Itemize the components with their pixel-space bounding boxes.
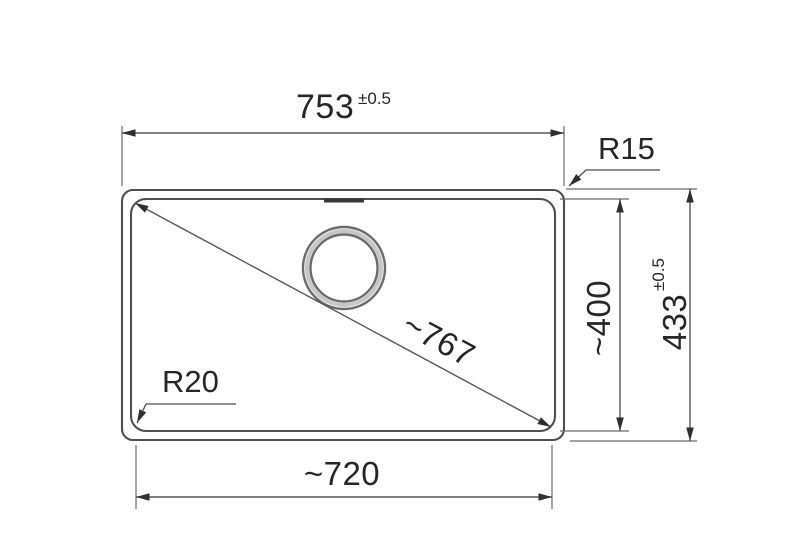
dim-label-height-outer: 433 <box>656 294 693 351</box>
dimension-bottom-width: ~720 <box>136 445 552 509</box>
label-radius-outer: R15 <box>598 131 655 166</box>
dimension-inner-height: ~400 <box>560 199 629 431</box>
dim-label-width-inner: ~720 <box>304 455 380 492</box>
dim-tolerance-width-outer: ±0.5 <box>358 89 391 108</box>
dim-label-width-outer: 753 <box>296 88 354 126</box>
dim-label-diagonal: ~767 <box>397 305 482 374</box>
label-radius-inner: R20 <box>162 364 219 399</box>
callout-radius-outer: R15 <box>569 131 660 186</box>
drain-hole-outer-circle <box>303 227 385 309</box>
technical-drawing-canvas: 753 ±0.5 ~720 ~400 433 ±0.5 <box>0 0 800 544</box>
leader-arrow-r15 <box>569 170 586 186</box>
drain-hole-mid-ring <box>307 231 381 305</box>
leader-arrow-r20 <box>137 404 146 423</box>
dim-tolerance-height-outer: ±0.5 <box>649 258 668 291</box>
callout-radius-inner: R20 <box>137 364 236 423</box>
dimension-top-width: 753 ±0.5 <box>122 88 564 186</box>
dim-label-height-inner: ~400 <box>580 280 617 356</box>
drain-hole-inner-circle <box>311 235 378 302</box>
sink-dimension-drawing: 753 ±0.5 ~720 ~400 433 ±0.5 <box>0 0 800 544</box>
